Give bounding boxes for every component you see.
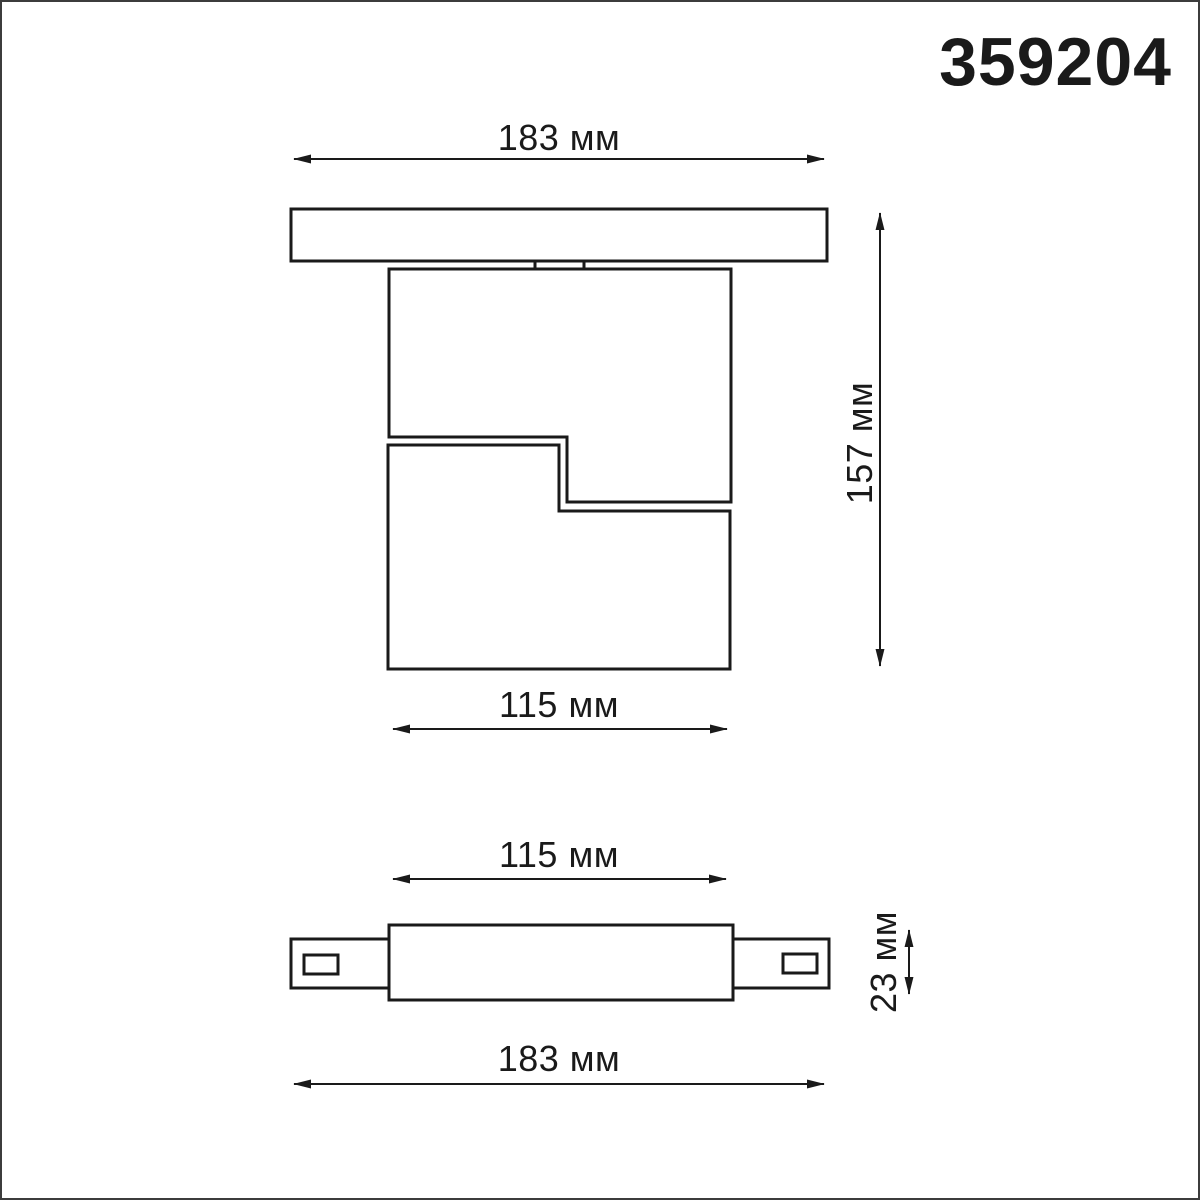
dim-label-overall-height: 157 мм xyxy=(842,382,878,505)
technical-drawing xyxy=(2,2,1200,1200)
dim-label-track-height: 23 мм xyxy=(866,911,902,1013)
dim-label-track-width-top: 183 мм xyxy=(498,120,621,156)
dim-label-body-width-front: 115 мм xyxy=(499,687,619,723)
front-track-bar xyxy=(291,209,827,261)
track-center-body xyxy=(389,925,733,1000)
drawing-canvas: 359204 183 мм 157 мм 115 мм 115 мм 23 мм… xyxy=(0,0,1200,1200)
track-left-slot xyxy=(304,955,338,974)
dim-label-body-width-track: 115 мм xyxy=(499,837,619,873)
dim-label-track-width-bottom: 183 мм xyxy=(498,1041,621,1077)
product-code: 359204 xyxy=(939,28,1172,96)
track-right-slot xyxy=(783,954,817,973)
